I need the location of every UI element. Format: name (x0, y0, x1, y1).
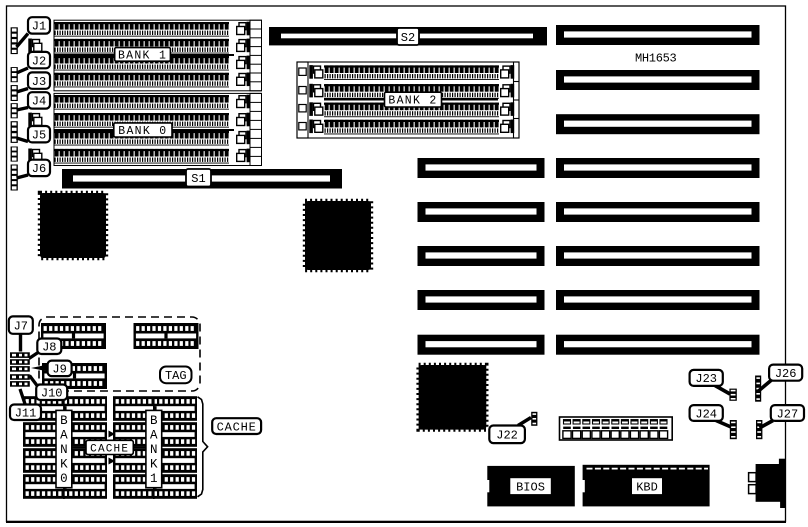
svg-text:B: B (60, 414, 68, 428)
svg-text:J7: J7 (14, 319, 28, 333)
svg-text:CACHE: CACHE (217, 420, 257, 434)
svg-text:J24: J24 (695, 407, 717, 421)
svg-text:J10: J10 (41, 387, 63, 401)
svg-text:J4: J4 (32, 95, 46, 109)
svg-text:K: K (150, 458, 158, 472)
svg-text:J9: J9 (52, 363, 66, 377)
svg-text:1: 1 (150, 472, 158, 486)
svg-text:B: B (150, 414, 158, 428)
svg-text:0: 0 (60, 472, 68, 486)
svg-text:MH1653: MH1653 (635, 52, 677, 66)
svg-text:CACHE: CACHE (90, 443, 129, 455)
svg-text:J27: J27 (777, 407, 799, 421)
svg-text:J1: J1 (32, 20, 46, 34)
svg-text:S2: S2 (401, 31, 415, 45)
svg-text:BIOS: BIOS (516, 481, 545, 495)
svg-text:KBD: KBD (636, 481, 658, 495)
svg-text:TAG: TAG (165, 369, 187, 383)
svg-text:J5: J5 (32, 129, 46, 143)
svg-text:BANK 0: BANK 0 (118, 125, 167, 138)
svg-text:K: K (60, 458, 68, 472)
svg-text:N: N (60, 443, 68, 457)
svg-text:BANK 2: BANK 2 (388, 95, 437, 108)
svg-text:BANK 1: BANK 1 (118, 50, 167, 63)
svg-text:J6: J6 (32, 162, 46, 176)
svg-text:A: A (150, 429, 158, 443)
svg-text:S1: S1 (191, 172, 205, 186)
svg-text:J26: J26 (775, 367, 797, 381)
svg-text:N: N (150, 443, 158, 457)
svg-text:J22: J22 (496, 429, 518, 443)
svg-text:A: A (60, 429, 68, 443)
svg-text:J11: J11 (15, 407, 37, 421)
svg-text:J8: J8 (42, 341, 56, 355)
svg-text:J3: J3 (32, 75, 46, 89)
svg-text:J2: J2 (32, 54, 46, 68)
svg-text:J23: J23 (695, 372, 717, 386)
